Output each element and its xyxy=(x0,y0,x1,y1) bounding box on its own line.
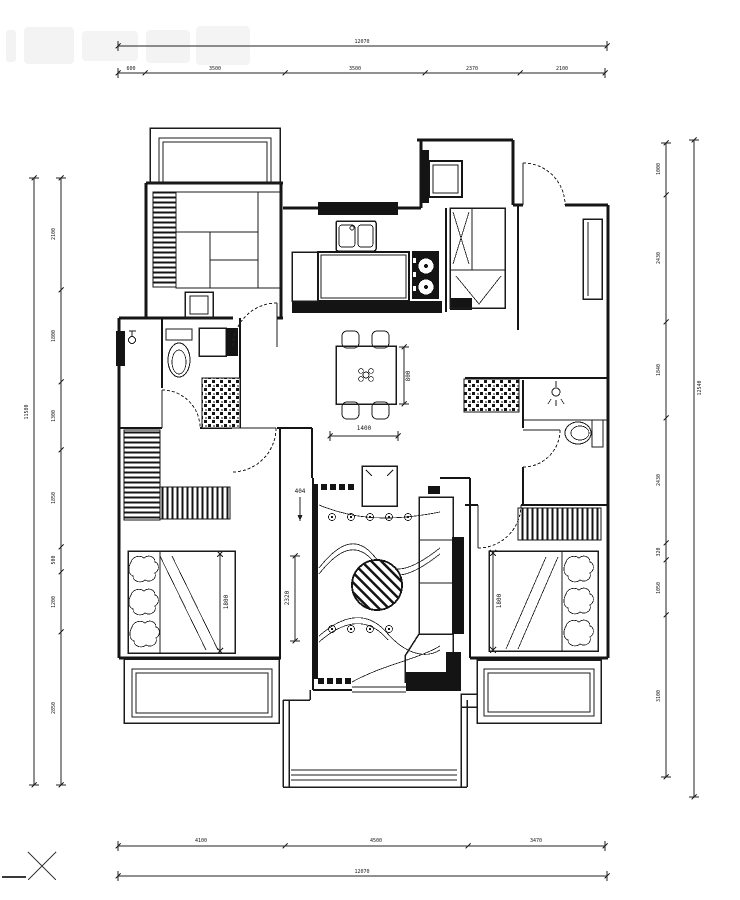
tv-cabinet xyxy=(406,652,461,691)
dining-area: 1400 800 xyxy=(328,331,413,441)
tile-niche-block xyxy=(464,379,519,412)
balcony-pier xyxy=(461,694,477,707)
dim-top-seg-1: 600 xyxy=(126,66,135,72)
bathroom-right-door xyxy=(523,430,560,467)
dim-right-overall: 12540 xyxy=(697,380,703,395)
bay-window-study xyxy=(150,128,280,183)
sink-basin-left xyxy=(339,225,355,247)
balcony-right xyxy=(477,660,601,723)
toilet-right xyxy=(565,420,603,447)
balcony-left xyxy=(124,659,279,723)
dim-left-overall: 11580 xyxy=(24,404,30,419)
kitchen-stove xyxy=(412,251,439,299)
dim-left-seg-3: 1300 xyxy=(51,410,57,422)
bath-vanity xyxy=(199,328,226,356)
floor-plan-sheet: 12070 600 3500 3500 2370 2100 4100 4500 … xyxy=(0,0,740,900)
dim-top-seg-4: 2370 xyxy=(466,66,478,72)
corner-cross-mark xyxy=(2,852,56,880)
dim-left-seg-2: 1800 xyxy=(51,330,57,342)
dim-bottom-seg-1: 4100 xyxy=(195,838,207,844)
bed-left-pillows xyxy=(129,556,159,647)
dim-living-width: 2320 xyxy=(284,590,291,605)
fridge-inner xyxy=(433,165,458,193)
dimension-left: 11580 2100 1800 1300 1850 500 1200 2850 xyxy=(24,176,66,788)
dim-bottom-seg-2: 4500 xyxy=(370,838,382,844)
bathroom-left-door xyxy=(162,390,200,428)
bedroom-left-door xyxy=(232,428,276,472)
dim-bed-right: 1800 xyxy=(496,593,503,608)
kitchen-counter-wall xyxy=(292,301,442,313)
watermark xyxy=(6,26,250,65)
table-centerpiece xyxy=(359,369,374,382)
dim-left-seg-7: 2850 xyxy=(51,702,57,714)
study-shelf xyxy=(153,192,176,287)
dim-bottom-seg-3: 3470 xyxy=(530,838,542,844)
hall-cabinet xyxy=(583,219,602,299)
bed-right-pillows xyxy=(564,556,593,646)
study-desk xyxy=(176,192,281,288)
wardrobe-right xyxy=(518,508,601,540)
dim-right-seg-1: 1000 xyxy=(656,163,662,175)
dim-bottom-overall: 12070 xyxy=(354,869,369,875)
balcony-center xyxy=(283,690,477,787)
kitchen xyxy=(292,221,439,301)
dim-left-seg-1: 2100 xyxy=(51,228,57,240)
dim-left-seg-6: 1200 xyxy=(51,596,57,608)
dim-dining-width: 1400 xyxy=(357,425,372,432)
living-room: 2320 404 xyxy=(284,466,464,691)
dining-table xyxy=(336,346,396,404)
dimension-bottom: 4100 4500 3470 12070 xyxy=(116,838,610,881)
bathroom-left xyxy=(129,328,241,428)
entry xyxy=(429,161,602,308)
kitchen-cabinet xyxy=(292,252,318,301)
left-wall-pier xyxy=(116,331,125,366)
dim-dining-depth: 800 xyxy=(405,370,412,381)
dim-right-seg-3: 1840 xyxy=(656,364,662,376)
dim-top-seg-2: 3500 xyxy=(209,66,221,72)
dim-tv-niche: 404 xyxy=(295,488,306,495)
tv-wall xyxy=(313,484,318,679)
dim-right-seg-4: 2430 xyxy=(656,474,662,486)
dim-top-seg-3: 3500 xyxy=(349,66,361,72)
entry-wall-pier xyxy=(421,150,429,203)
dim-right-seg-2: 2430 xyxy=(656,252,662,264)
study-stool-inner xyxy=(190,296,208,314)
kitchen-window-wall xyxy=(318,202,398,215)
side-table xyxy=(362,466,397,506)
niche-arrow xyxy=(298,515,303,521)
faucet-hook-icon xyxy=(129,331,137,344)
wardrobe-left xyxy=(124,430,160,520)
sink-faucet xyxy=(350,226,354,230)
sink-basin-right xyxy=(358,225,373,247)
washer-mosaic-block xyxy=(202,378,240,428)
bath-vanity-side xyxy=(226,328,238,356)
shower-icon xyxy=(548,381,564,406)
dim-right-seg-7: 3100 xyxy=(656,690,662,702)
dim-right-seg-5: 320 xyxy=(656,547,662,556)
bedroom-left: 1800 xyxy=(124,430,235,654)
bed-left xyxy=(128,551,235,653)
dim-left-seg-4: 1850 xyxy=(51,492,57,504)
dim-left-seg-5: 500 xyxy=(51,555,57,564)
dimension-right: 1000 2430 1840 2430 320 1050 3100 12540 xyxy=(656,138,703,800)
bedroom-right: 1800 xyxy=(489,508,601,653)
bedroom-right-door xyxy=(478,505,521,548)
kitchen-sink xyxy=(336,221,376,251)
kitchen-island-top xyxy=(321,255,406,298)
dresser-left xyxy=(160,487,230,519)
dim-top-overall: 12070 xyxy=(354,39,369,45)
dim-bed-left: 1800 xyxy=(223,594,230,609)
balconies xyxy=(124,659,601,787)
study-room-furniture xyxy=(153,192,281,318)
dim-right-seg-6: 1050 xyxy=(656,582,662,594)
shoe-closet xyxy=(450,208,505,308)
entry-door xyxy=(523,163,565,205)
fridge xyxy=(429,161,462,197)
bed-right xyxy=(489,551,598,651)
interior-walls xyxy=(119,205,608,692)
sofa-armrest xyxy=(452,537,464,634)
kitchen-island xyxy=(318,252,409,301)
dim-top-seg-5: 2100 xyxy=(556,66,568,72)
bathroom-right xyxy=(464,379,603,447)
toilet-left xyxy=(166,329,192,377)
round-coffee-table xyxy=(352,560,402,610)
floor-plan-drawing: 12070 600 3500 3500 2370 2100 4100 4500 … xyxy=(0,0,740,900)
